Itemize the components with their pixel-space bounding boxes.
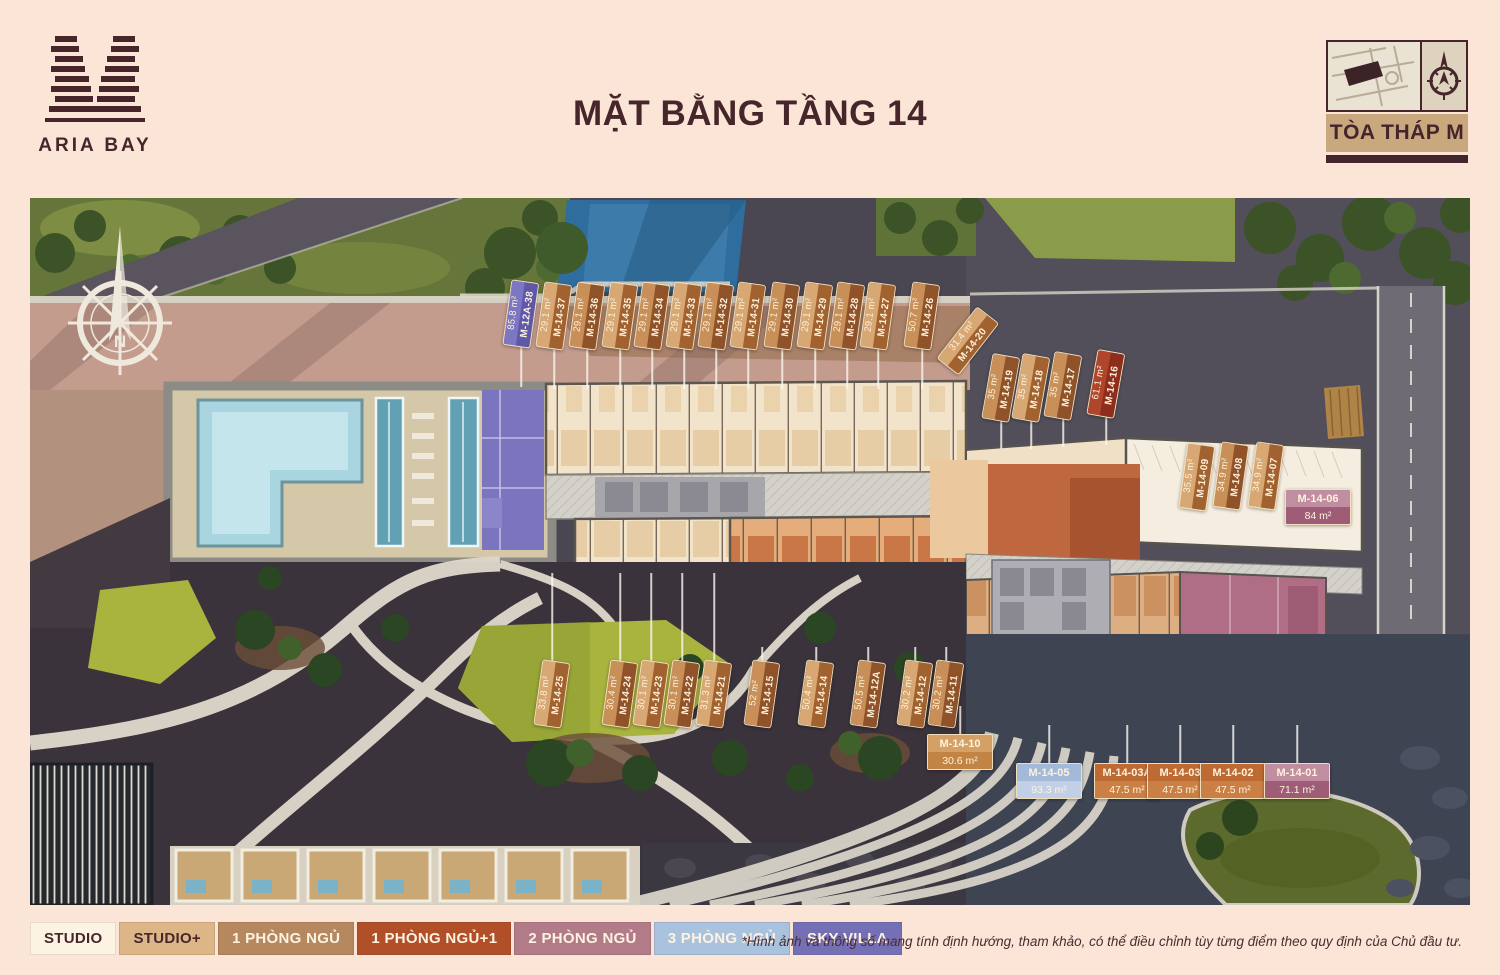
unit-leader-line [914, 647, 916, 661]
legend-item-3: 1 PHÒNG NGỦ [218, 922, 354, 955]
unit-label-M-14-02[interactable]: M-14-0247.5 m² [1200, 763, 1266, 799]
badge-underline [1326, 155, 1468, 163]
unit-leader-line [715, 349, 717, 389]
unit-leader-line [747, 349, 749, 389]
unit-leader-line [877, 349, 879, 389]
unit-leader-line [867, 647, 869, 661]
disclaimer: *Hình ảnh và thông số mang tính định hướ… [741, 934, 1462, 949]
compass-icon-small [1426, 51, 1462, 101]
tower-badge: TÒA THÁP M [1326, 40, 1468, 163]
unit-leader-line [1105, 417, 1107, 445]
legend-item-1: STUDIO [30, 922, 116, 955]
unit-leader-line [1062, 419, 1064, 447]
page: ARIA BAY MẶT BẰNG TẦNG 14 [0, 0, 1500, 975]
louver-roof-building [30, 764, 152, 905]
tower-badge-label: TÒA THÁP M [1326, 114, 1468, 152]
unit-leader-line [846, 349, 848, 389]
legend-item-2: STUDIO+ [119, 922, 215, 955]
unit-label-M-14-10[interactable]: M-14-1030.6 m² [927, 734, 993, 770]
page-title: MẶT BẰNG TẦNG 14 [0, 94, 1500, 134]
unit-leader-line [1179, 725, 1181, 765]
unit-leader-line [815, 647, 817, 661]
unit-leader-line [681, 573, 683, 661]
unit-leader-line [1232, 725, 1234, 765]
brand-name: ARIA BAY [30, 135, 160, 157]
unit-leader-line [1030, 421, 1032, 449]
sky-villa-block [482, 390, 544, 550]
unit-id: M-14-05 [1017, 764, 1081, 781]
unit-area: 84 m² [1286, 507, 1350, 524]
unit-leader-line [713, 573, 715, 661]
side-road [1378, 286, 1444, 634]
amenity-pool [536, 200, 746, 292]
unit-leader-line [781, 349, 783, 389]
unit-label-M-14-05[interactable]: M-14-0593.3 m² [1016, 763, 1082, 799]
unit-leader-line [761, 647, 763, 661]
unit-label-M-14-01[interactable]: M-14-0171.1 m² [1264, 763, 1330, 799]
unit-id: M-14-01 [1265, 764, 1329, 781]
brand-logo-mark [39, 36, 151, 124]
location-map [1326, 40, 1468, 112]
unit-id: M-14-10 [928, 735, 992, 752]
unit-leader-line [1126, 725, 1128, 765]
unit-leader-line [651, 349, 653, 389]
unit-area: 71.1 m² [1265, 781, 1329, 798]
unit-leader-line [586, 349, 588, 389]
unit-leader-line [1048, 725, 1050, 765]
unit-leader-line [619, 349, 621, 389]
compass-north-label: N [114, 332, 126, 351]
unit-area: 93.3 m² [1017, 781, 1081, 798]
unit-label-M-14-06[interactable]: M-14-0684 m² [1285, 489, 1351, 525]
unit-leader-line [959, 706, 961, 736]
unit-id: M-14-06 [1286, 490, 1350, 507]
unit-leader-line [945, 647, 947, 661]
unit-leader-line [683, 349, 685, 389]
unit-leader-line [1000, 421, 1002, 449]
unit-area: 47.5 m² [1201, 781, 1265, 798]
brand-logo: ARIA BAY [30, 36, 160, 157]
legend-item-5: 2 PHÒNG NGỦ [514, 922, 650, 955]
unit-leader-line [520, 347, 522, 387]
unit-leader-line [921, 349, 923, 389]
location-map-icon [1328, 42, 1420, 110]
unit-leader-line [1296, 725, 1298, 765]
unit-leader-line [553, 349, 555, 389]
unit-leader-line [551, 573, 553, 661]
legend-item-4: 1 PHÒNG NGỦ+1 [357, 922, 511, 955]
unit-leader-line [619, 573, 621, 661]
unit-leader-line [650, 573, 652, 661]
unit-leader-line [814, 349, 816, 389]
unit-area: 30.6 m² [928, 752, 992, 769]
unit-id: M-14-02 [1201, 764, 1265, 781]
